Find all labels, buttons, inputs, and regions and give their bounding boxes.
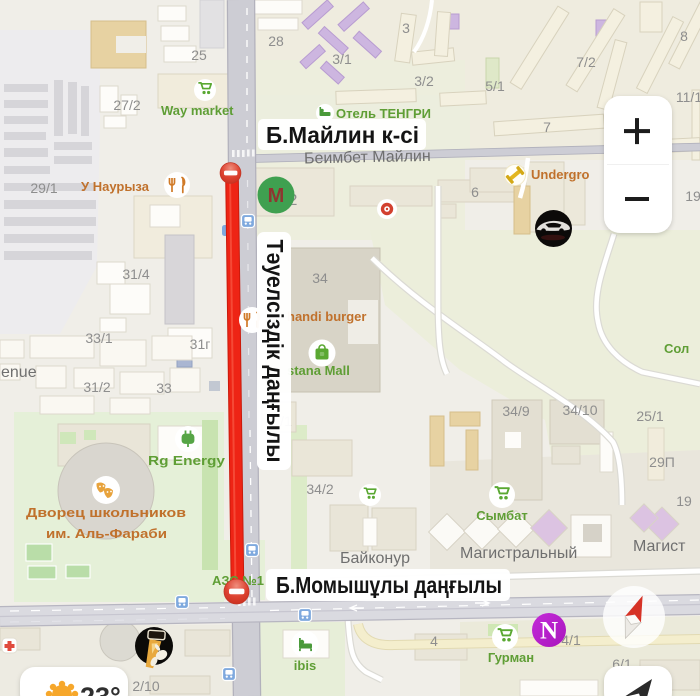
svg-text:2/10: 2/10 <box>132 678 159 694</box>
svg-text:34/2: 34/2 <box>306 481 333 497</box>
svg-text:Гурман: Гурман <box>488 650 534 665</box>
svg-text:31г: 31г <box>190 336 211 352</box>
svg-text:3: 3 <box>402 20 410 36</box>
svg-text:Отель ТЕНГРИ: Отель ТЕНГРИ <box>336 106 431 121</box>
svg-text:Беимбет Майлин: Беимбет Майлин <box>304 148 431 168</box>
svg-text:34: 34 <box>312 270 328 286</box>
svg-text:27/2: 27/2 <box>113 97 140 113</box>
svg-text:им. Аль-Фараби: им. Аль-Фараби <box>46 526 167 541</box>
svg-text:34/9: 34/9 <box>502 403 529 419</box>
svg-text:29/1: 29/1 <box>30 180 57 196</box>
svg-text:8: 8 <box>680 28 688 44</box>
svg-text:М: М <box>268 185 285 207</box>
svg-text:3/1: 3/1 <box>332 51 352 67</box>
svg-text:31/4: 31/4 <box>122 266 149 282</box>
svg-text:23°: 23° <box>80 682 121 696</box>
svg-text:3/2: 3/2 <box>414 73 434 89</box>
svg-text:33: 33 <box>156 380 172 396</box>
svg-text:28: 28 <box>268 33 284 49</box>
svg-text:Б.Майлин к-сі: Б.Майлин к-сі <box>266 122 419 148</box>
svg-text:5/1: 5/1 <box>485 78 505 94</box>
svg-text:Б.Момышұлы даңғылы: Б.Момышұлы даңғылы <box>276 572 502 598</box>
svg-text:19: 19 <box>676 493 692 509</box>
svg-text:7/2: 7/2 <box>576 54 596 70</box>
svg-text:19: 19 <box>685 188 700 204</box>
svg-text:Дворец школьников: Дворец школьников <box>26 505 186 520</box>
svg-text:11/1: 11/1 <box>676 89 700 105</box>
svg-text:ibis: ibis <box>294 658 316 673</box>
svg-text:У Наурыза: У Наурыза <box>81 179 150 194</box>
svg-text:6: 6 <box>471 184 479 200</box>
svg-text:Rg Energy: Rg Energy <box>148 453 226 468</box>
svg-text:enue: enue <box>1 364 37 381</box>
svg-text:Тәуелсіздік даңғылы: Тәуелсіздік даңғылы <box>262 240 288 463</box>
svg-text:Undergro: Undergro <box>531 167 590 182</box>
svg-text:Магист: Магист <box>633 538 686 555</box>
svg-text:7: 7 <box>543 119 551 135</box>
svg-text:29П: 29П <box>649 454 675 470</box>
svg-text:25: 25 <box>191 47 207 63</box>
svg-text:34/10: 34/10 <box>562 402 597 418</box>
svg-text:31/2: 31/2 <box>83 379 110 395</box>
svg-text:4: 4 <box>430 633 438 649</box>
svg-text:Сол: Сол <box>664 341 689 356</box>
svg-text:Way market: Way market <box>161 103 234 118</box>
svg-text:Магистральный: Магистральный <box>460 545 577 562</box>
svg-text:Сымбат: Сымбат <box>476 508 528 523</box>
svg-text:handi burger: handi burger <box>287 309 366 324</box>
svg-text:N: N <box>540 618 558 645</box>
svg-text:25/1: 25/1 <box>636 408 663 424</box>
svg-text:33/1: 33/1 <box>85 330 112 346</box>
svg-text:Байконур: Байконур <box>340 550 410 567</box>
